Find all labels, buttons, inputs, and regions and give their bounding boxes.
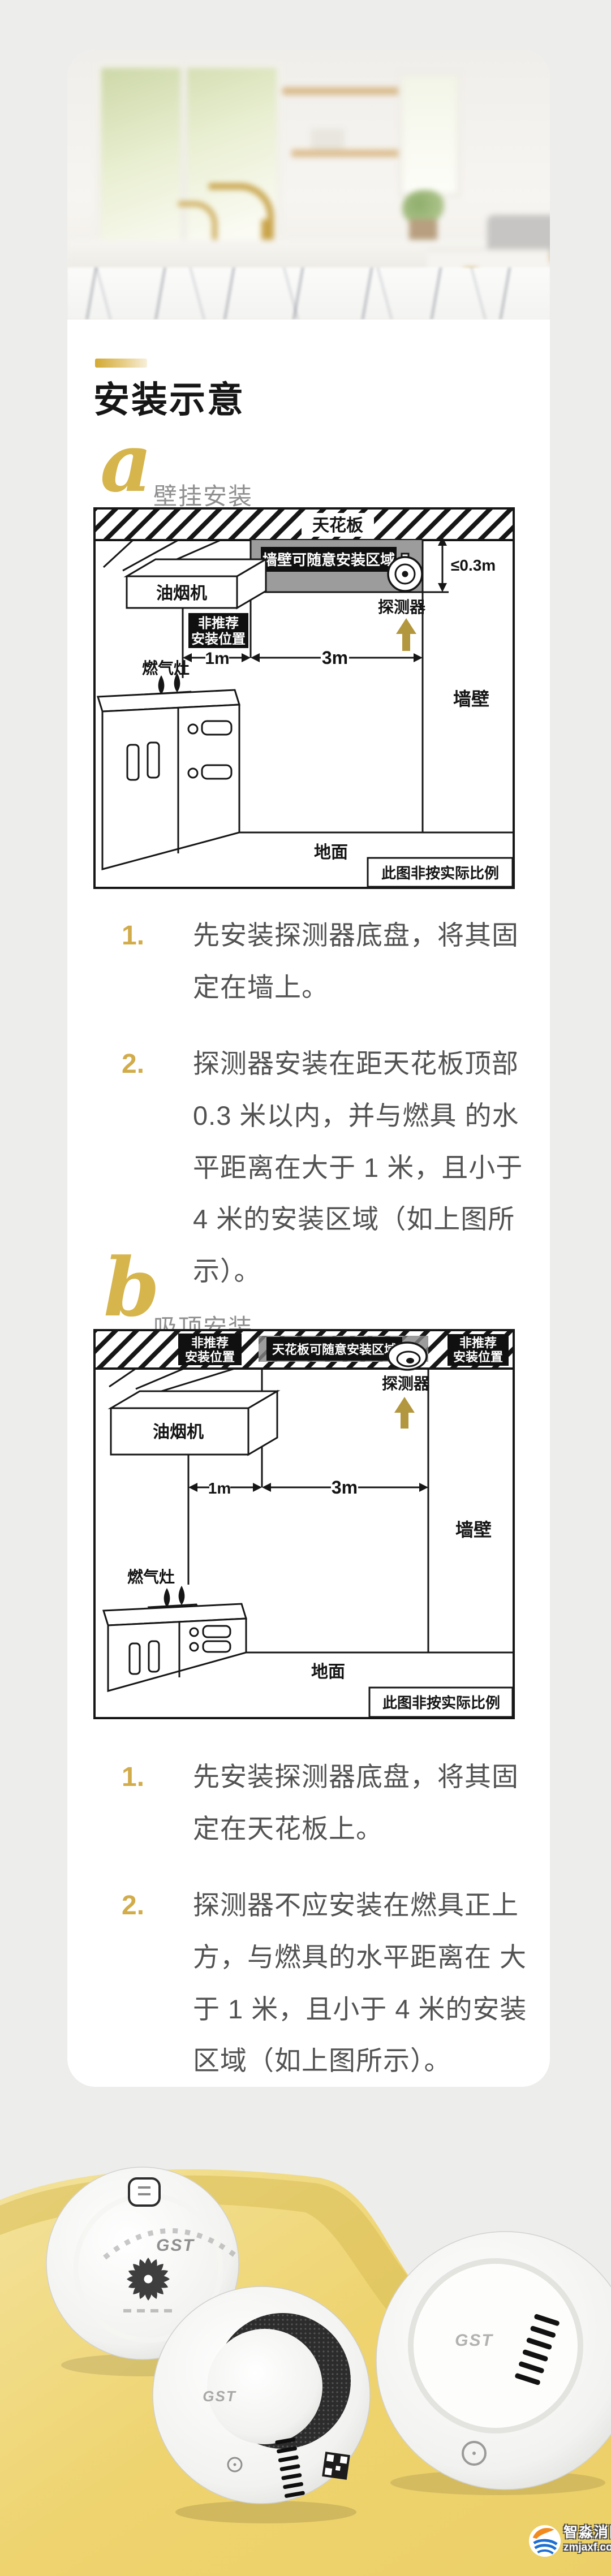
wall-label: 墙壁 <box>453 689 489 709</box>
svg-text:安装位置: 安装位置 <box>191 631 246 647</box>
section-b-letter: b <box>104 1248 160 1328</box>
watermark: 智淼消防 zmjaxf.com <box>528 2521 611 2557</box>
stove-label: 燃气灶 <box>142 659 190 677</box>
brand-logo: GST <box>156 2236 195 2255</box>
dim-3m-label: 3m <box>322 648 348 668</box>
shelf-dish <box>311 129 345 149</box>
diagram-wall-mount: 天花板 墙壁可随意安装区域 ≤0.3m 探测器 <box>93 507 515 889</box>
section-a-label: 壁挂安装 <box>153 477 253 512</box>
svg-text:非推荐: 非推荐 <box>459 1336 497 1350</box>
products-banner: GST GST <box>0 2087 611 2576</box>
hood-label: 油烟机 <box>153 1423 204 1442</box>
instructions-a: 1. 先安装探测器底盘，将其固定在墙上。 2. 探测器安装在距天花板顶部 0.3… <box>122 909 540 1297</box>
kitchen-photo <box>67 50 550 320</box>
svg-text:安装位置: 安装位置 <box>453 1350 503 1364</box>
ground-label: 地面 <box>311 1663 345 1681</box>
dim-3m-label: 3m <box>332 1477 358 1498</box>
detector-icon <box>388 1343 427 1370</box>
item-text: 探测器不应安装在燃具正上方，与燃具的水平距离在 大于 1 米，且小于 4 米的安… <box>193 1879 540 2087</box>
page: 安装示意 a 壁挂安装 天花板 墙壁可随意安装区域 <box>0 0 611 2576</box>
list-item: 1. 先安装探测器底盘，将其固定在天花板上。 <box>122 1751 540 1854</box>
item-number: 1. <box>122 909 193 1013</box>
ground-label: 地面 <box>314 843 348 862</box>
hood-label: 油烟机 <box>156 584 207 603</box>
svg-text:非推荐: 非推荐 <box>198 616 239 631</box>
detector-label: 探测器 <box>382 1375 430 1392</box>
window-right <box>398 72 461 197</box>
scale-note: 此图非按实际比例 <box>382 1694 500 1711</box>
item-text: 先安装探测器底盘，将其固定在天花板上。 <box>193 1751 540 1854</box>
brand-logo: GST <box>203 2388 236 2405</box>
dim-1m-label: 1m <box>205 649 229 668</box>
zone-label: 墙壁可随意安装区域 <box>263 551 395 568</box>
dim-1m-label: 1m <box>208 1479 231 1497</box>
accent-bar <box>95 359 147 368</box>
list-item: 2. 探测器安装在距天花板顶部 0.3 米以内，并与燃具 的水平距离在大于 1 … <box>122 1038 540 1297</box>
wall-label: 墙壁 <box>455 1520 492 1540</box>
item-text: 探测器安装在距天花板顶部 0.3 米以内，并与燃具 的水平距离在大于 1 米，且… <box>193 1038 540 1297</box>
list-item: 2. 探测器不应安装在燃具正上方，与燃具的水平距离在 大于 1 米，且小于 4 … <box>122 1879 540 2087</box>
svg-text:非推荐: 非推荐 <box>191 1336 229 1350</box>
watermark-name: 智淼消防 <box>563 2521 611 2542</box>
svg-text:安装位置: 安装位置 <box>185 1350 235 1364</box>
content-card: 安装示意 a 壁挂安装 天花板 墙壁可随意安装区域 <box>67 50 550 2087</box>
list-item: 1. 先安装探测器底盘，将其固定在墙上。 <box>122 909 540 1013</box>
stove-label: 燃气灶 <box>127 1568 175 1586</box>
item-text: 先安装探测器底盘，将其固定在墙上。 <box>193 909 540 1013</box>
section-a-letter: a <box>100 423 152 503</box>
ceiling-zone-label: 天花板可随意安装区域 <box>272 1343 397 1357</box>
brand-logo: GST <box>455 2331 493 2350</box>
test-mute-button <box>129 2178 160 2206</box>
fan-grille-icon <box>127 2258 170 2301</box>
item-number: 1. <box>122 1751 193 1854</box>
height-limit-label: ≤0.3m <box>451 556 496 574</box>
qr-code <box>322 2452 350 2480</box>
page-title: 安装示意 <box>93 371 245 423</box>
instructions-b: 1. 先安装探测器底盘，将其固定在天花板上。 2. 探测器不应安装在燃具正上方，… <box>122 1751 540 2087</box>
watermark-site: zmjaxf.com <box>563 2542 611 2554</box>
detector-label: 探测器 <box>378 598 426 616</box>
watermark-logo-icon <box>528 2525 561 2557</box>
marble-island <box>67 267 550 320</box>
ceiling-label: 天花板 <box>312 516 363 535</box>
scale-note: 此图非按实际比例 <box>381 865 499 882</box>
item-number: 2. <box>122 1879 193 2087</box>
diagram-ceiling-mount: 非推荐 安装位置 天花板可随意安装区域 非推荐 安装位置 探测器 <box>93 1329 515 1719</box>
